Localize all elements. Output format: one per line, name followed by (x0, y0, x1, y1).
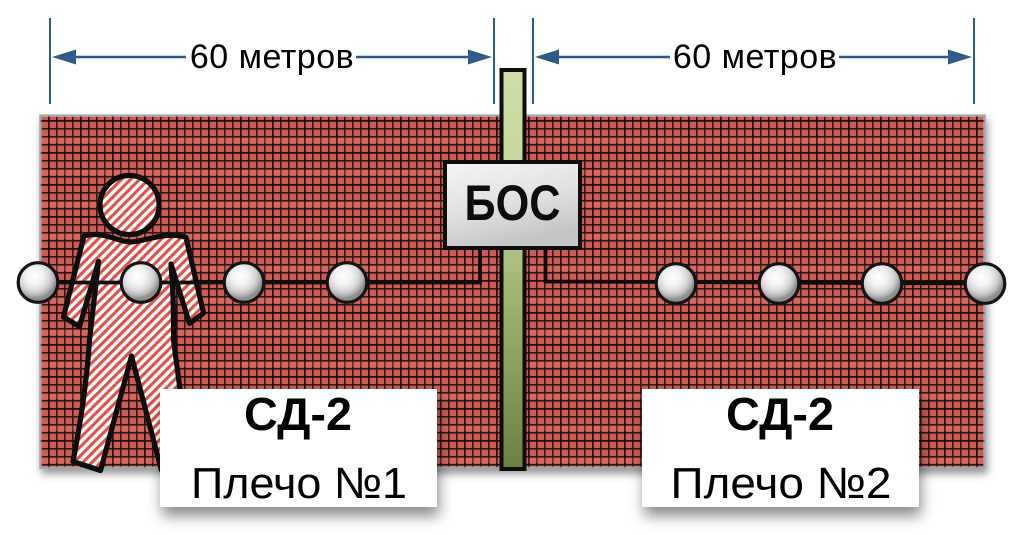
svg-text:60 метров: 60 метров (673, 38, 837, 76)
svg-text:Плечо №1: Плечо №1 (191, 459, 407, 508)
svg-text:СД-2: СД-2 (726, 388, 834, 440)
svg-text:60 метров: 60 метров (190, 38, 354, 76)
svg-text:БОС: БОС (465, 175, 561, 231)
svg-text:Плечо №2: Плечо №2 (671, 459, 892, 508)
svg-text:СД-2: СД-2 (244, 388, 352, 440)
